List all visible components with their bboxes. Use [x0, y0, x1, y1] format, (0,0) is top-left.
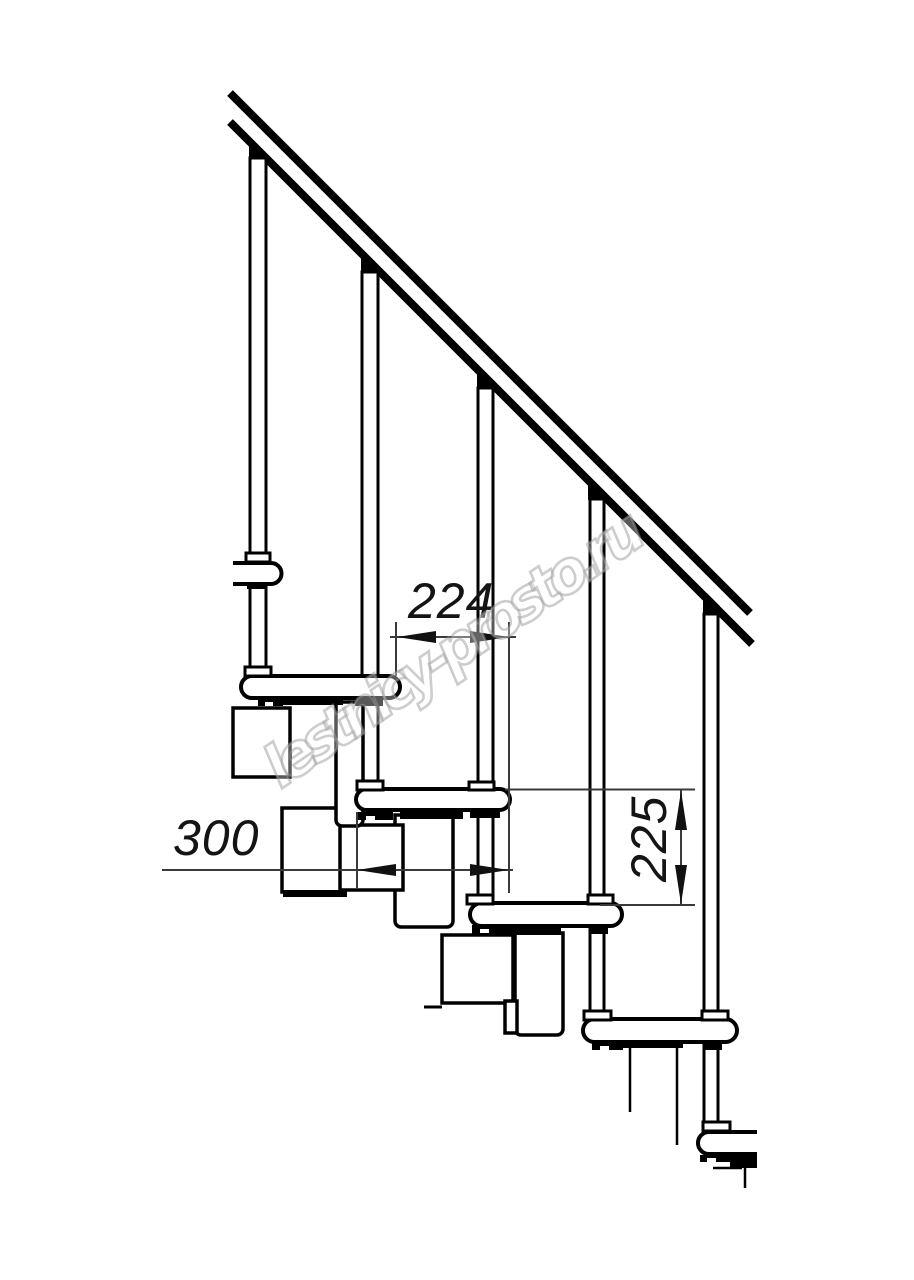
clamp-b-bar — [400, 812, 463, 819]
tread-fragment-bottom — [698, 1132, 757, 1154]
collar-1a — [246, 553, 270, 562]
module-box-c-step — [505, 1001, 517, 1033]
tread-4 — [583, 1019, 737, 1042]
staircase-drawing: 224 300 225 lestnicy-prosto.ru — [0, 0, 914, 1280]
baluster-1-lower — [250, 584, 266, 676]
collar-1b — [245, 667, 271, 676]
drawing-page: 224 300 225 lestnicy-prosto.ru — [0, 0, 914, 1280]
tread-2 — [356, 789, 510, 810]
notch-a — [265, 702, 273, 706]
baluster-4-lower — [590, 927, 604, 1011]
collar-5a — [702, 1011, 728, 1020]
notch-d — [600, 1046, 609, 1050]
tread-3 — [470, 903, 622, 926]
baluster-5-lower — [704, 1042, 718, 1122]
tread-fragment-top — [233, 563, 282, 584]
notch-e — [707, 1158, 716, 1162]
collar-3a — [469, 782, 494, 790]
notch-b — [366, 816, 375, 820]
collar-4a — [588, 895, 613, 904]
module-box-c — [442, 935, 513, 1003]
clamp-c-bar — [503, 928, 561, 935]
baluster-5-upper — [704, 614, 718, 1011]
clamp-c-post4 — [590, 927, 608, 934]
baluster-3-lower — [478, 810, 493, 895]
collar-5b — [703, 1122, 730, 1131]
collar-3b — [467, 895, 493, 904]
baluster-2-upper — [362, 272, 378, 677]
broken-module-lines — [630, 1048, 745, 1188]
dim-label-depth: 300 — [173, 810, 259, 866]
dim-label-riser: 225 — [621, 796, 677, 883]
collar-2 — [357, 781, 383, 790]
collar-4b — [584, 1011, 611, 1020]
notch-c — [480, 929, 489, 933]
module-box-a2 — [282, 808, 340, 892]
module-column-c-d — [515, 933, 563, 1035]
module-b-base-bar — [283, 890, 347, 897]
baluster-1-upper — [250, 158, 266, 561]
